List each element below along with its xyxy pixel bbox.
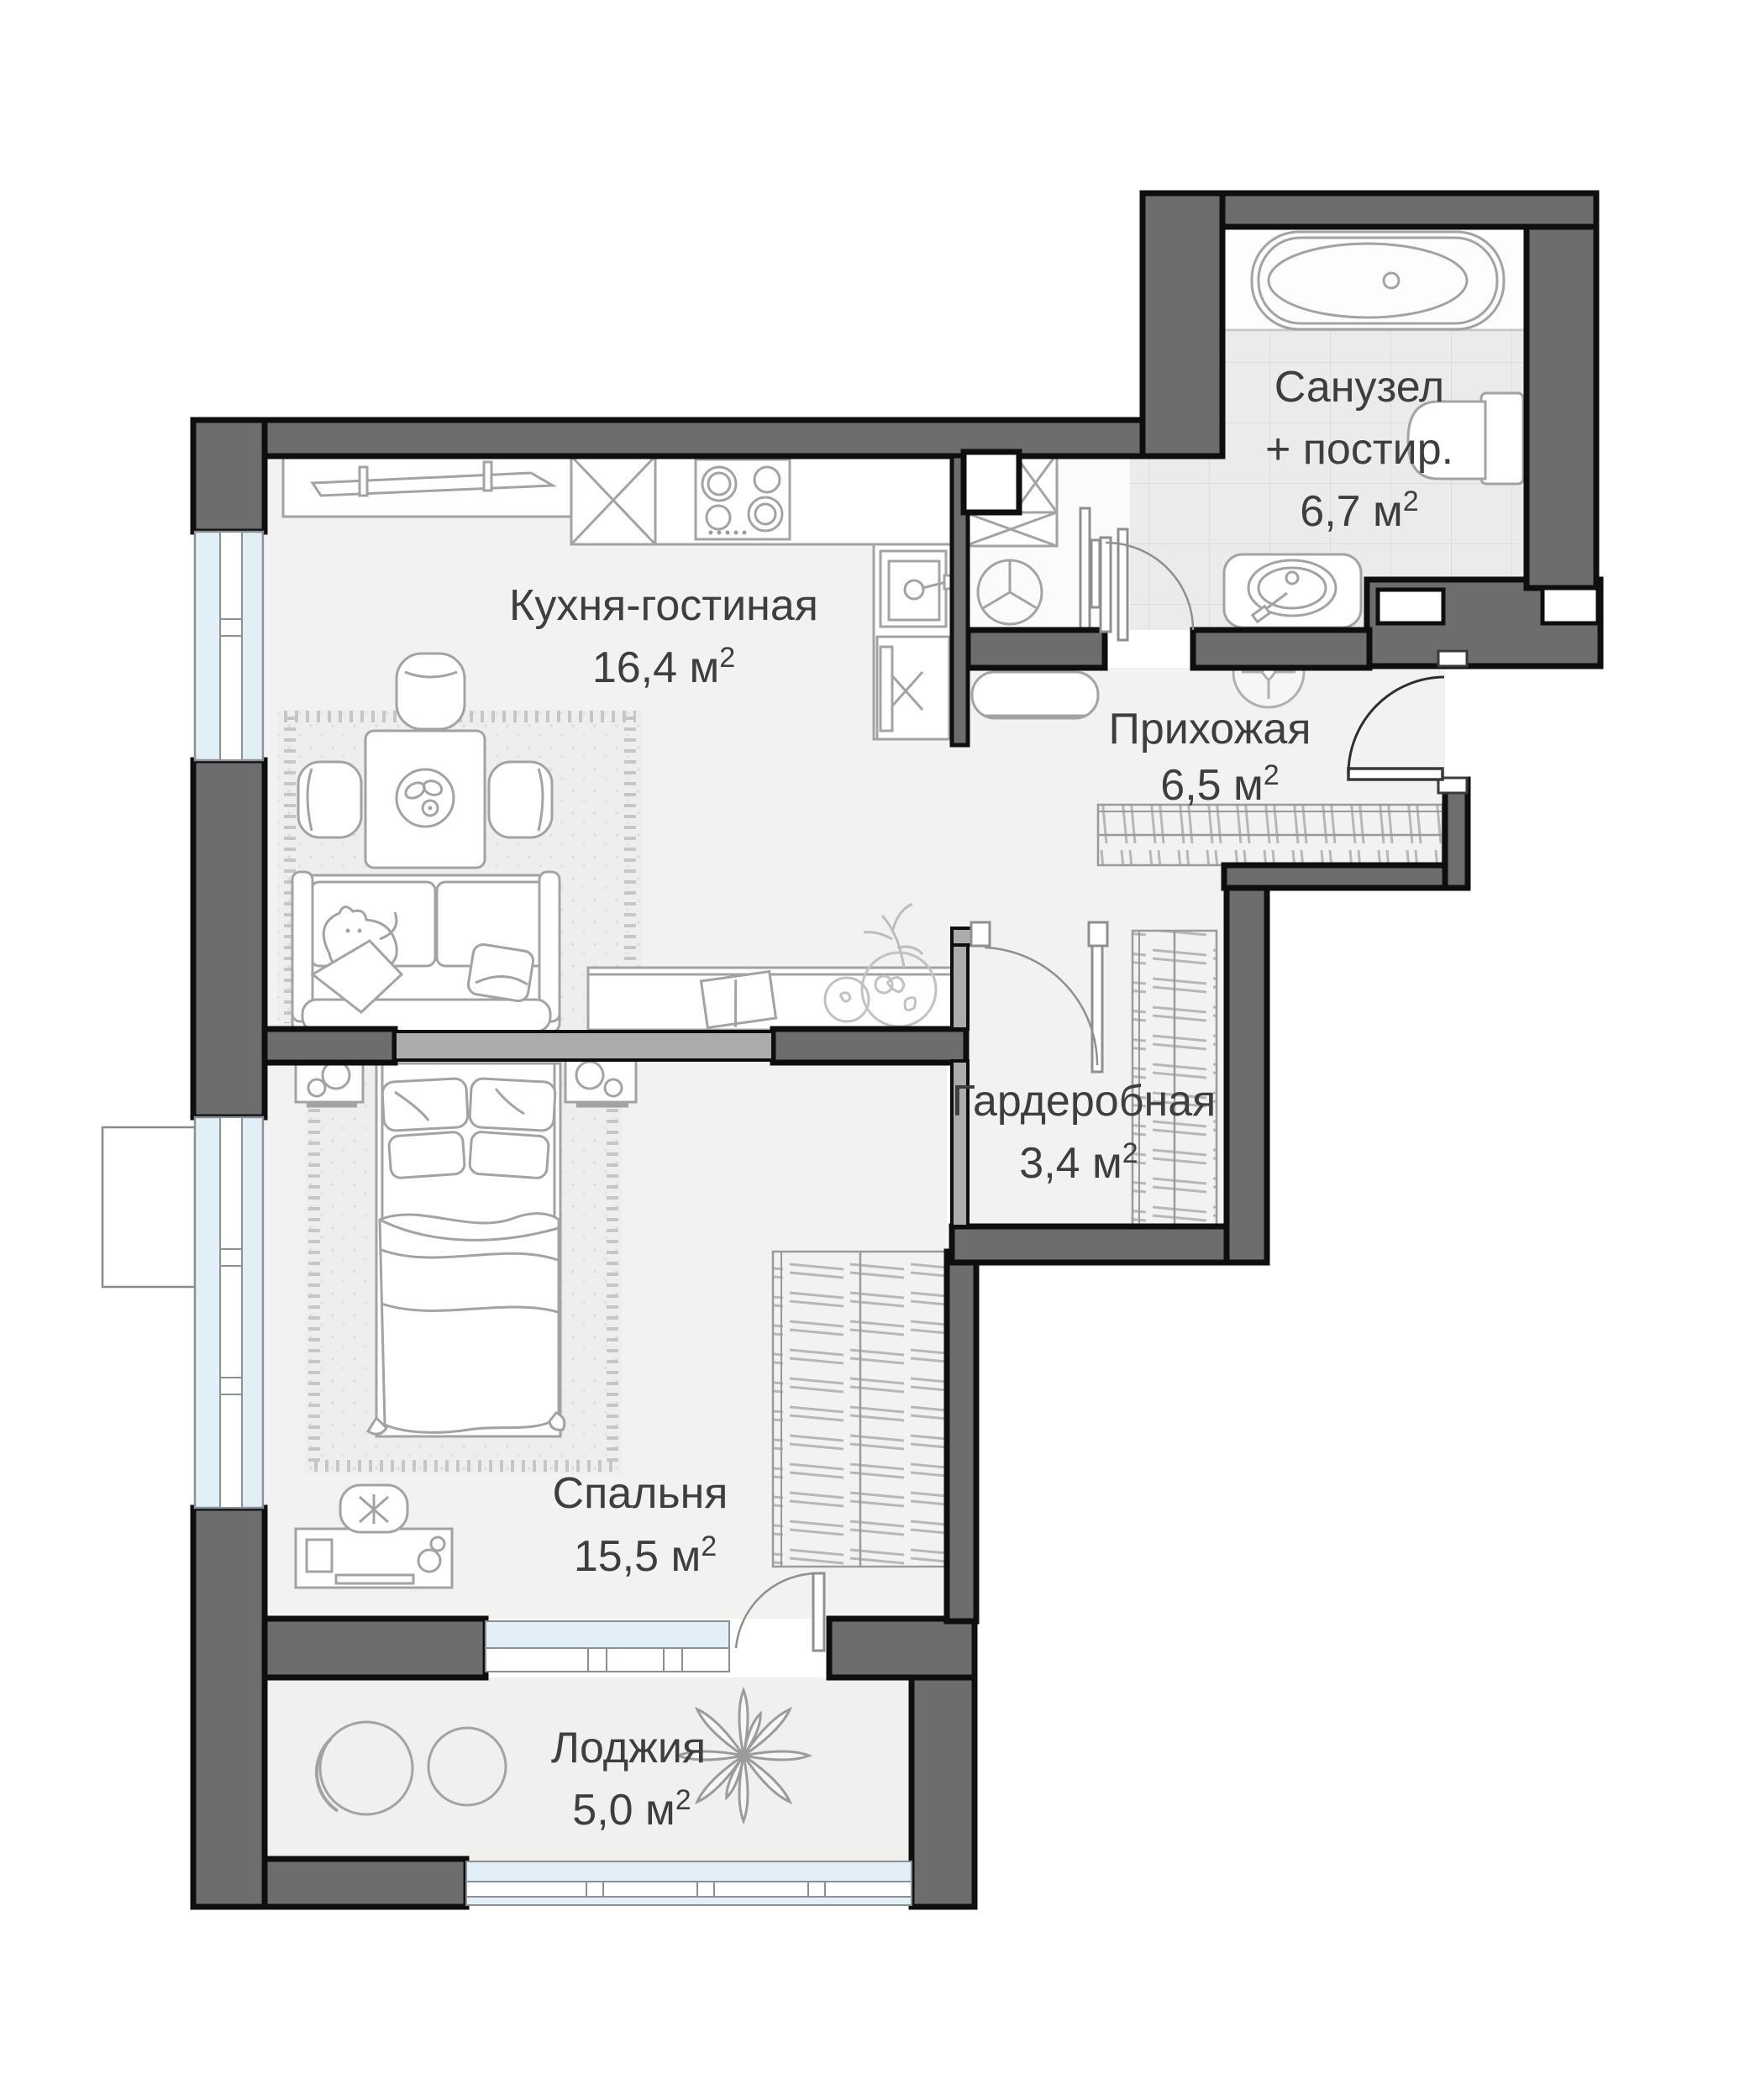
bedroom-loggia-window [486,1621,729,1672]
label-loggia: Лоджия [551,1724,706,1772]
chair-left [298,762,361,837]
wall-wardrobe-right [1227,865,1267,1263]
floor-plan: Кухня-гостиная 16,4 м2 Санузел + постир.… [0,0,1750,2100]
bed [368,1063,565,1436]
duct-shaft-kitchen [964,452,1019,512]
area-loggia: 5,0 м2 [572,1784,691,1835]
kitchen-counter-return [874,544,953,739]
desk [296,1529,452,1588]
label-wardrobe: Гардеробная [952,1077,1217,1126]
wall-closet-bottom [1224,865,1468,888]
wall-loggia-bottom [265,1859,466,1907]
sofa-pillow [467,943,534,1003]
wall-bedroom-bottom-right [829,1619,975,1677]
label-bathroom-2: + постир. [1265,425,1453,474]
area-hallway: 6,5 м2 [1160,759,1279,810]
book-icon [702,972,776,1028]
wall-wet-hall-right [1193,630,1369,668]
wall-living-bedroom-left [265,1029,395,1063]
dining-table [365,731,485,868]
wall-living-bedroom-right [773,1029,966,1063]
floor-plan-page: Кухня-гостиная 16,4 м2 Санузел + постир.… [0,0,1750,2100]
bathroom-sink-icon [1224,554,1361,627]
kitchen-cabinet-icon [571,456,655,544]
nightstand-left [296,1060,363,1105]
kitchen-window [195,532,263,760]
wall-kitchen-top [193,420,1222,456]
wall-bathroom-left [1143,193,1222,456]
label-kitchen-living: Кухня-гостиная [509,581,818,630]
stove-icon [696,459,790,539]
monitor-icon [307,1540,332,1572]
wall-left-mid [193,760,265,1117]
hallway-closet [1098,805,1443,865]
wall-loggia-right [912,1677,975,1907]
chair-top [397,654,465,729]
area-kitchen-living: 16,4 м2 [592,642,735,692]
label-bedroom: Спальня [553,1469,728,1518]
nightstand-right [565,1060,636,1105]
duct-shaft-entry-1 [1378,590,1443,623]
wall-bedroom-bottom-left [265,1619,486,1677]
wall-wardrobe-bottom [952,1226,1267,1263]
sofa [292,872,560,1033]
loggia-glazing [466,1861,912,1905]
label-hallway: Прихожая [1109,705,1311,753]
area-bedroom: 15,5 м2 [574,1530,717,1581]
chair-right [489,762,552,837]
kitchen-sink-icon [880,551,953,627]
area-wardrobe: 3,4 м2 [1019,1137,1138,1188]
floor-passage-2 [952,865,1227,928]
wall-bedroom-right [947,1252,976,1621]
bedroom-closet [773,1252,947,1567]
kitchen-console [283,458,571,517]
wall-wet-hall-left [968,630,1105,668]
wall-bathroom-right [1527,193,1596,588]
kitchen-counter [655,456,952,544]
bedroom-window [102,1117,263,1508]
partition-living-bedroom [395,1032,773,1060]
dishwasher-icon [877,637,949,739]
desk-chair [340,1485,407,1532]
wall-hall-right-low [1445,780,1468,888]
wall-left-low [193,1508,265,1907]
area-bathroom: 6,7 м2 [1300,486,1418,536]
blanket [368,1214,565,1435]
wall-left-pier-top [193,420,265,532]
hallway-bench [972,672,1098,718]
duct-shaft-entry-2 [1542,588,1598,623]
label-bathroom-1: Санузел [1274,363,1445,412]
